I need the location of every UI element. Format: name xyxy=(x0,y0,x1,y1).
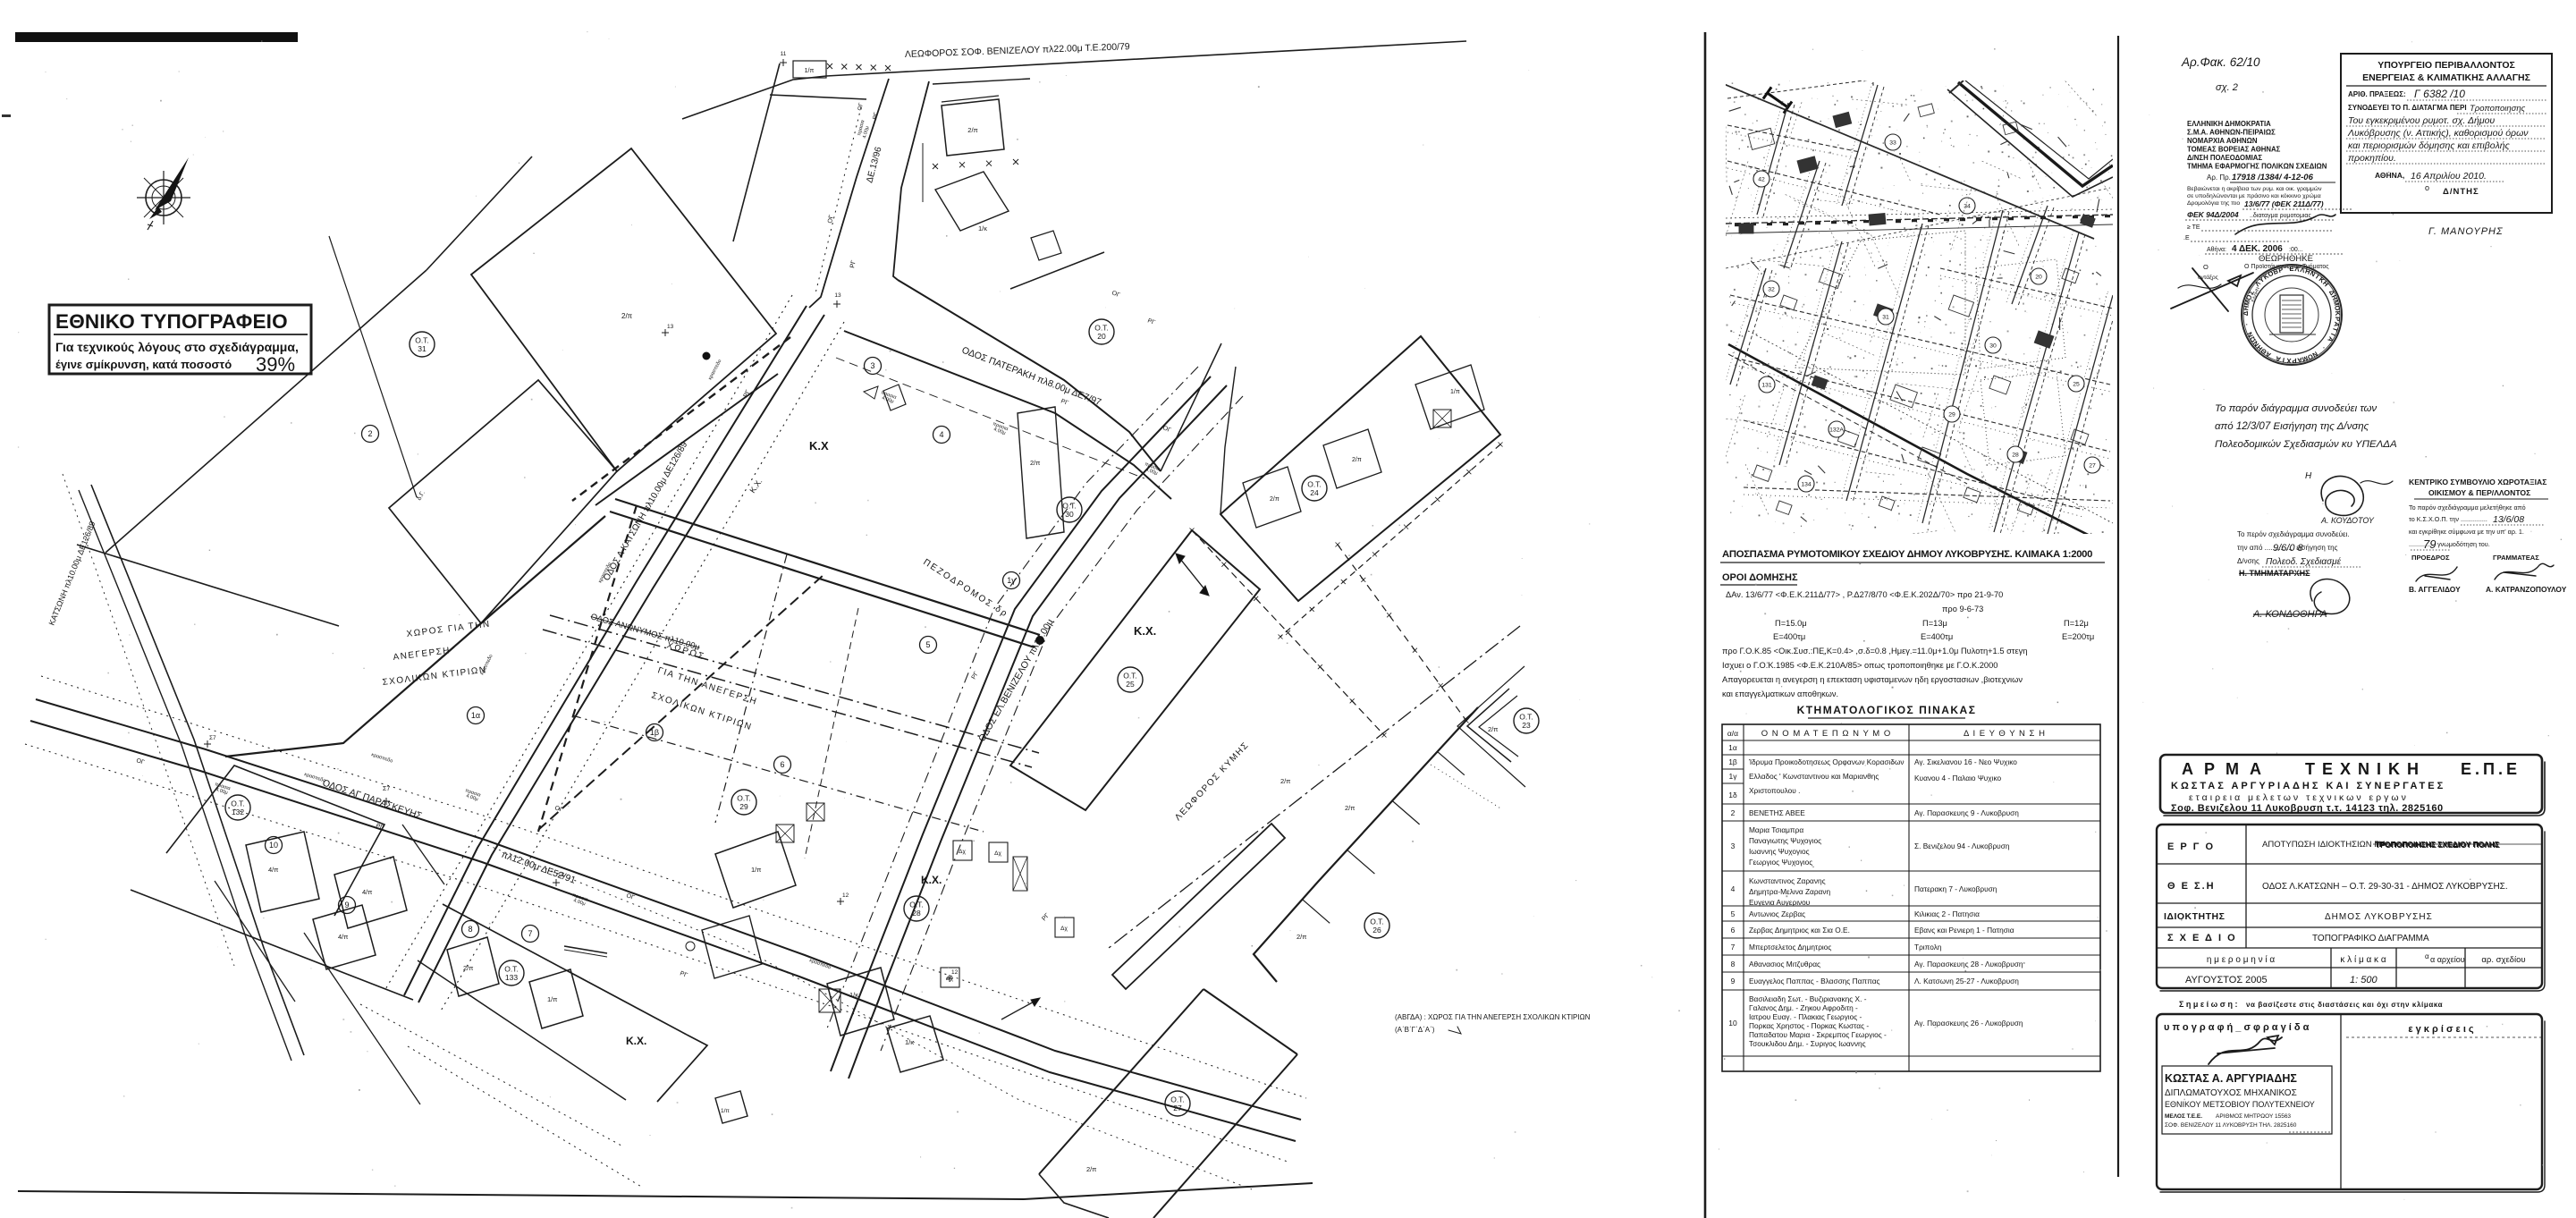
svg-text:20: 20 xyxy=(2035,275,2042,281)
svg-text:79: 79 xyxy=(2423,537,2436,551)
svg-text:Γ 6382 /10: Γ 6382 /10 xyxy=(2414,88,2465,100)
svg-text:ΚΩΣΤΑΣ ΑΡΓΥΡΙΑΔΗΣ ΚΑΙ: ΚΩΣΤΑΣ ΑΡΓΥΡΙΑΔΗΣ ΚΑΙ ΣΥΝΕΡΓΑΤΕΣ xyxy=(2171,781,2445,791)
svg-text:και εγκρίθηκε σύμφωνα με την υ: και εγκρίθηκε σύμφωνα με την υπ' αρ. 1. xyxy=(2409,528,2524,536)
svg-text:Ιατρου Ευαγ. - Πλακιας Γεωργ: Ιατρου Ευαγ. - Πλακιας Γεωργιος - xyxy=(1749,1012,1862,1021)
svg-text:ΜΕΛΟΣ Τ.Ε.Ε.: ΜΕΛΟΣ Τ.Ε.Ε. xyxy=(2165,1113,2202,1120)
svg-text:132Α: 132Α xyxy=(1829,427,1844,434)
svg-text:13/6/08: 13/6/08 xyxy=(2493,514,2524,525)
svg-text:α αρχείου: α αρχείου xyxy=(2430,955,2465,964)
svg-text:3: 3 xyxy=(1731,842,1736,850)
svg-text:28: 28 xyxy=(2012,453,2019,459)
svg-text:σε υποδηλώνονται με πράσινο κα: σε υποδηλώνονται με πράσινο και κόκκινο … xyxy=(2187,192,2321,199)
svg-text:Ε=400τμ: Ε=400τμ xyxy=(1773,632,1805,641)
svg-text:4: 4 xyxy=(939,430,943,439)
svg-text:ΑΘΗΝΑ,: ΑΘΗΝΑ, xyxy=(2375,171,2404,180)
svg-text:1γ: 1γ xyxy=(1729,772,1738,781)
svg-text:Βεβαιώνεται η ακρίβεια των ρυμ: Βεβαιώνεται η ακρίβεια των ρυμ. και οικ.… xyxy=(2187,185,2322,192)
svg-text:ΑΡΙΘΜΟΣ ΜΗΤΡΩΟΥ 15563: ΑΡΙΘΜΟΣ ΜΗΤΡΩΟΥ 15563 xyxy=(2216,1113,2291,1120)
svg-text:ΥΠΟΥΡΓΕΙΟ ΠΕΡΙΒΑΛΛΟΝΤΟΣ: ΥΠΟΥΡΓΕΙΟ ΠΕΡΙΒΑΛΛΟΝΤΟΣ xyxy=(2378,60,2515,71)
svg-text:2/π: 2/π xyxy=(621,312,633,320)
svg-text:κ λ ί μ α κ α: κ λ ί μ α κ α xyxy=(2340,954,2386,965)
svg-text:Ο.Τ.: Ο.Τ. xyxy=(737,794,751,803)
svg-text:εταιρεια μελετων τεχ: εταιρεια μελετων τεχνικων εργων xyxy=(2189,792,2409,803)
svg-text:12: 12 xyxy=(558,872,565,878)
svg-text:ΚΩΣΤΑΣ Α. ΑΡΓΥΡΙΑΔΗΣ: ΚΩΣΤΑΣ Α. ΑΡΓΥΡΙΑΔΗΣ xyxy=(2165,1072,2297,1085)
svg-text:10: 10 xyxy=(1728,1019,1737,1028)
svg-text:1α: 1α xyxy=(1728,743,1737,752)
svg-text:Σ7: Σ7 xyxy=(209,735,216,741)
svg-text:Του εγκεκριμένου ρυμοτ. σχ. Δή: Του εγκεκριμένου ρυμοτ. σχ. Δήμου xyxy=(2348,115,2495,126)
svg-text:..διαταγμα ρυμοτομιας: ..διαταγμα ρυμοτομιας xyxy=(2250,213,2311,219)
svg-text:Γ. ΜΑΝΟΥΡΗΣ: Γ. ΜΑΝΟΥΡΗΣ xyxy=(2428,226,2504,237)
svg-text:17918 /1384/ 4-12-06: 17918 /1384/ 4-12-06 xyxy=(2232,173,2314,182)
svg-text:Το παρόν διάγραμμα συνοδεύε: Το παρόν διάγραμμα συνοδεύει των xyxy=(2215,403,2377,414)
svg-text:2/π: 2/π xyxy=(1488,725,1498,733)
svg-text:≥ ΤΕ: ≥ ΤΕ xyxy=(2187,224,2200,231)
svg-text:2/π: 2/π xyxy=(1030,459,1040,467)
svg-text:ε γ κ ρ ί σ ε ι ς: ε γ κ ρ ί σ ε ι ς xyxy=(2408,1024,2474,1035)
svg-text:4 ΔΕΚ. 2006: 4 ΔΕΚ. 2006 xyxy=(2232,244,2283,254)
svg-text:Ο.Τ.: Ο.Τ. xyxy=(1123,672,1137,681)
svg-text:Κωνσταντινος Ζαρανης: Κωνσταντινος Ζαρανης xyxy=(1749,876,1826,885)
svg-text:ΤΟΜΕΑΣ ΒΟΡΕΙΑΣ ΑΘΗΝΑΣ: ΤΟΜΕΑΣ ΒΟΡΕΙΑΣ ΑΘΗΝΑΣ xyxy=(2187,146,2281,154)
svg-text:4/π: 4/π xyxy=(362,888,372,896)
svg-text:1β: 1β xyxy=(650,728,659,737)
svg-text:Ε.Π.Ε: Ε.Π.Ε xyxy=(2461,760,2521,778)
svg-text:2/π: 2/π xyxy=(1280,777,1290,785)
svg-text:υ π ο γ ρ α φ ή _ σ φ ρ α: υ π ο γ ρ α φ ή _ σ φ ρ α γ ί δ α xyxy=(2164,1022,2310,1033)
svg-text:Ο.Τ.: Ο.Τ. xyxy=(1062,502,1077,511)
svg-text:134: 134 xyxy=(1801,482,1812,488)
svg-text:ΦΕΚ 94Δ/2004: ΦΕΚ 94Δ/2004 xyxy=(2187,210,2239,219)
svg-text:Ζερβας Δημητριος και Σια Ο.Ε.: Ζερβας Δημητριος και Σια Ο.Ε. xyxy=(1749,926,1850,935)
svg-text:Δ/νσης: Δ/νσης xyxy=(2237,557,2259,565)
svg-text:2: 2 xyxy=(367,429,372,438)
svg-text:Εβανς και Ρενιερη 1 - Πατησι: Εβανς και Ρενιερη 1 - Πατησια xyxy=(1914,926,2014,935)
svg-text:132: 132 xyxy=(232,808,244,816)
svg-text:προ Γ.Ο.Κ.85 <Οικ.Συσ.:ΠΕ,Κ=0.: προ Γ.Ο.Κ.85 <Οικ.Συσ.:ΠΕ,Κ=0.4> ,σ.δ=0.… xyxy=(1722,647,2027,656)
svg-text:ΚΤΗΜΑΤΟΛΟΓΙΚΟΣ ΠΙΝΑΚΑΣ: ΚΤΗΜΑΤΟΛΟΓΙΚΟΣ ΠΙΝΑΚΑΣ xyxy=(1797,704,1977,716)
svg-text:Τροποποιησης: Τροποποιησης xyxy=(2470,104,2526,114)
svg-text:11: 11 xyxy=(781,51,787,57)
svg-text:ΤΟΠΟΓΡΑΦΙΚΟ ΔιΑΓΡΑΜΜΑ: ΤΟΠΟΓΡΑΦΙΚΟ ΔιΑΓΡΑΜΜΑ xyxy=(2312,934,2429,943)
svg-text:Τριπολη: Τριπολη xyxy=(1914,943,1942,952)
svg-text:2: 2 xyxy=(1731,808,1736,817)
svg-text:1α: 1α xyxy=(471,711,480,720)
svg-text:έγινε σμίκρυνση, κατά ποσοστό: έγινε σμίκρυνση, κατά ποσοστό xyxy=(55,358,232,371)
svg-text:Η. ΤΜΗΜΑΤΑΡΧΗΣ: Η. ΤΜΗΜΑΤΑΡΧΗΣ xyxy=(2239,569,2310,578)
svg-text:4: 4 xyxy=(1731,884,1736,893)
svg-text:ΔΙΠΛΩΜΑΤΟΥΧΟΣ ΜΗΧΑΝΙΚΟΣ: ΔΙΠΛΩΜΑΤΟΥΧΟΣ ΜΗΧΑΝΙΚΟΣ xyxy=(2165,1088,2297,1098)
svg-text:ΑΠΟΣΠΑΣΜΑ ΡΥΜΟΤΟΜΙΚΟΥ ΣΧΕΔΙΟ: ΑΠΟΣΠΑΣΜΑ ΡΥΜΟΤΟΜΙΚΟΥ ΣΧΕΔΙΟΥ ΔΗΜΟΥ ΛΥΚΟ… xyxy=(1722,549,2092,560)
svg-text:Σ7: Σ7 xyxy=(383,786,390,792)
svg-text:1/π: 1/π xyxy=(547,995,557,1003)
svg-text:4/π: 4/π xyxy=(338,933,348,941)
svg-text:Ίδρυμα Προικοδοτησεως Ορφανων: Ίδρυμα Προικοδοτησεως Ορφανων Κορασιδων xyxy=(1748,757,1905,766)
svg-text:και περιορισμών δόμησης και επ: και περιορισμών δόμησης και επιβολής xyxy=(2348,140,2511,151)
svg-text:ΘΕΩΡΗΘΗΚΕ: ΘΕΩΡΗΘΗΚΕ xyxy=(2259,254,2313,264)
svg-text:Ισχυει ο Γ.Ο.Κ.1985 <Φ.Ε.Κ.210: Ισχυει ο Γ.Ο.Κ.1985 <Φ.Ε.Κ.210Α/85> οπως… xyxy=(1722,661,1997,670)
svg-text:3: 3 xyxy=(870,361,874,370)
svg-text:32: 32 xyxy=(1768,287,1775,293)
svg-text:1/κ: 1/κ xyxy=(978,224,987,233)
svg-text:13: 13 xyxy=(667,324,674,330)
svg-text:Ε Ρ Γ Ο: Ε Ρ Γ Ο xyxy=(2167,842,2215,852)
svg-text:1/π: 1/π xyxy=(751,866,761,874)
svg-text:Ο.Τ.: Ο.Τ. xyxy=(1519,713,1533,722)
svg-text:Κ.Χ.: Κ.Χ. xyxy=(1134,624,1156,638)
svg-text:ΚΕΝΤΡΙΚΟ ΣΥΜΒΟΥΛΙΟ ΧΩΡΟΤΑΞΙΑ: ΚΕΝΤΡΙΚΟ ΣΥΜΒΟΥΛΙΟ ΧΩΡΟΤΑΞΙΑΣ xyxy=(2409,478,2546,486)
svg-text:Σ η μ ε ί ω σ η :: Σ η μ ε ί ω σ η : xyxy=(2179,1000,2237,1009)
svg-text:Σ Χ Ε Δ Ι Ο: Σ Χ Ε Δ Ι Ο xyxy=(2167,933,2237,943)
svg-text:30: 30 xyxy=(1989,343,1997,350)
svg-text:(ΑΒΓΔΑ) : ΧΩΡΟΣ ΓΙΑ ΤΗΝ ΑΝΕΓ: (ΑΒΓΔΑ) : ΧΩΡΟΣ ΓΙΑ ΤΗΝ ΑΝΕΓΕΡΣΗ ΣΧΟΛΙΚΩ… xyxy=(1395,1013,1591,1021)
svg-text:ΟΔΟΣ Λ.ΚΑΤΣΩΝΗ – Ο.Τ. 29-3: ΟΔΟΣ Λ.ΚΑΤΣΩΝΗ – Ο.Τ. 29-30-31 - ΔΗΜΟΣ Λ… xyxy=(2262,882,2508,892)
svg-text:6: 6 xyxy=(1731,926,1736,935)
svg-text:ΑΡΜΑ: ΑΡΜΑ xyxy=(2182,760,2272,778)
svg-text:Π=12μ: Π=12μ xyxy=(2064,619,2089,628)
svg-text:Π=13μ: Π=13μ xyxy=(1922,619,1947,628)
svg-text:5: 5 xyxy=(1731,909,1736,918)
svg-text:30: 30 xyxy=(1065,510,1074,519)
svg-text:ΕΝΕΡΓΕΙΑΣ & ΚΛΙΜΑΤΙΚΗΣ ΑΛΛ: ΕΝΕΡΓΕΙΑΣ & ΚΛΙΜΑΤΙΚΗΣ ΑΛΛΑΓΗΣ xyxy=(2362,72,2530,83)
svg-text:23: 23 xyxy=(1522,721,1531,730)
svg-text:Ο.Τ.: Ο.Τ. xyxy=(231,799,245,808)
svg-text:Δχ: Δχ xyxy=(1060,926,1068,932)
svg-text:9: 9 xyxy=(1731,977,1736,985)
svg-text:131: 131 xyxy=(1761,383,1772,389)
svg-text:9: 9 xyxy=(344,901,349,909)
svg-text:Μαρια Τσιαμπρα: Μαρια Τσιαμπρα xyxy=(1749,825,1803,834)
svg-text:ΕΛΛΗΝΙΚΗ ΔΗΜΟΚΡΑΤΙΑ: ΕΛΛΗΝΙΚΗ ΔΗΜΟΚΡΑΤΙΑ xyxy=(2187,120,2271,128)
svg-text:Ε=400τμ: Ε=400τμ xyxy=(1921,632,1953,641)
svg-text:Μπερτσελετος Δημητριος: Μπερτσελετος Δημητριος xyxy=(1749,943,1831,952)
svg-text:8: 8 xyxy=(1731,960,1736,968)
svg-text:Πολεοδομικών Σχεδιασμών κυ: Πολεοδομικών Σχεδιασμών κυ ΥΠΕΛΔΑ xyxy=(2215,439,2397,450)
svg-text:από 12/3/07 Εισήγηση της Δ: από 12/3/07 Εισήγηση της Δ/νσης xyxy=(2215,421,2369,432)
svg-text:Κ.Χ.: Κ.Χ. xyxy=(626,1035,646,1047)
svg-text:Ε: Ε xyxy=(2289,265,2293,273)
svg-text:8: 8 xyxy=(468,925,472,934)
svg-text:16 Απριλίου 2010.: 16 Απριλίου 2010. xyxy=(2411,171,2487,182)
svg-text:29: 29 xyxy=(739,802,748,811)
svg-text:Χ: Χ xyxy=(2286,357,2291,365)
svg-text:Αγ. Παρασκευης 26 - Λυκοβρυσ: Αγ. Παρασκευης 26 - Λυκοβρυση xyxy=(1914,1019,2023,1028)
svg-text:25: 25 xyxy=(2073,382,2080,388)
svg-text:31: 31 xyxy=(1882,315,1889,321)
svg-text:αρ. σχεδίου: αρ. σχεδίου xyxy=(2481,955,2525,965)
svg-text:Αρ.Φακ. 62/10: Αρ.Φακ. 62/10 xyxy=(2181,55,2260,69)
svg-text:1/π: 1/π xyxy=(1450,389,1460,395)
svg-text::00...: :00... xyxy=(2289,247,2303,253)
svg-text:1δ: 1δ xyxy=(1728,791,1737,799)
svg-text:1/κ: 1/κ xyxy=(849,991,858,999)
svg-text:Αθανασιος Μιτζυθρας: Αθανασιος Μιτζυθρας xyxy=(1749,960,1820,968)
svg-text:Για τεχνικούς λόγους στο σχεδι: Για τεχνικούς λόγους στο σχεδιάγραμμα, xyxy=(55,340,299,354)
svg-text:1: 500: 1: 500 xyxy=(2350,975,2378,985)
svg-text:ΑΥΓΟΥΣΤΟΣ 2005: ΑΥΓΟΥΣΤΟΣ 2005 xyxy=(2185,975,2268,985)
svg-text:η μ ε ρ ο μ η ν ί α: η μ ε ρ ο μ η ν ί α xyxy=(2207,954,2276,965)
svg-text:27: 27 xyxy=(1173,1104,1182,1112)
svg-text:Δημητρα-Μελινα Ζαρανη: Δημητρα-Μελινα Ζαρανη xyxy=(1749,887,1830,896)
svg-text:34: 34 xyxy=(1964,204,1971,210)
svg-text:Δ/ΝΤΗΣ: Δ/ΝΤΗΣ xyxy=(2443,187,2479,197)
svg-text:7: 7 xyxy=(1731,943,1736,952)
svg-text:ΤΡΟΠΟΠΟΙΗΣΗΣ ΣΧΕΔΙΟΥ ΠΟΛΗΣ: ΤΡΟΠΟΠΟΙΗΣΗΣ ΣΧΕΔΙΟΥ ΠΟΛΗΣ xyxy=(2376,841,2500,850)
svg-text:προκηπίου.: προκηπίου. xyxy=(2348,153,2396,164)
svg-text:Ο.Τ.: Ο.Τ. xyxy=(909,901,924,909)
svg-text:να βασίζεστε στις διαστάσει: να βασίζεστε στις διαστάσεις και όχι στη… xyxy=(2246,1001,2443,1009)
svg-text:προ 9-6-73: προ 9-6-73 xyxy=(1942,605,1983,613)
svg-text:ΝΟΜΑΡΧΙΑ ΑΘΗΝΩΝ: ΝΟΜΑΡΧΙΑ ΑΘΗΝΩΝ xyxy=(2187,137,2258,145)
svg-text:2/π: 2/π xyxy=(1345,804,1355,812)
svg-text:Ο.Τ.: Ο.Τ. xyxy=(1094,324,1109,333)
svg-text:Κ.Χ.: Κ.Χ. xyxy=(921,874,942,886)
svg-text:Π=15.0μ: Π=15.0μ xyxy=(1775,619,1807,628)
svg-text:4/π: 4/π xyxy=(268,866,278,874)
svg-text:2/π: 2/π xyxy=(1296,933,1306,941)
svg-text:Ο Ν Ο Μ Α Τ Ε Π Ω Ν Υ Μ Ο: Ο Ν Ο Μ Α Τ Ε Π Ω Ν Υ Μ Ο xyxy=(1761,729,1891,739)
svg-text:2/π: 2/π xyxy=(1086,1165,1096,1173)
svg-text:ΠΡΟΕΔΡΟΣ: ΠΡΟΕΔΡΟΣ xyxy=(2411,554,2450,562)
svg-text:ΤΕΧΝΙΚΗ: ΤΕΧΝΙΚΗ xyxy=(2305,760,2426,778)
svg-text:Χριστοπουλου .: Χριστοπουλου . xyxy=(1749,786,1800,795)
svg-text:Αγ. Σικελιανου 16 - Νεο Ψυχι: Αγ. Σικελιανου 16 - Νεο Ψυχικο xyxy=(1914,757,2017,766)
svg-text:2/π: 2/π xyxy=(967,126,977,134)
svg-text:Πολεοδ. Σχεδιασμέ: Πολεοδ. Σχεδιασμέ xyxy=(2266,556,2342,567)
svg-text:Το περόν σχεδιάγραμμα συνοδεύε: Το περόν σχεδιάγραμμα συνοδεύει. xyxy=(2237,530,2350,538)
svg-text:Αντωνιος Ζερβας: Αντωνιος Ζερβας xyxy=(1749,909,1805,918)
svg-text:και επαγγελματικων αποθηκων.: και επαγγελματικων αποθηκων. xyxy=(1722,689,1838,698)
svg-text:7: 7 xyxy=(528,929,532,938)
svg-text:33: 33 xyxy=(1889,140,1896,147)
svg-text:12: 12 xyxy=(951,969,959,976)
svg-text:5: 5 xyxy=(925,640,930,649)
svg-text:Η: Η xyxy=(2305,471,2312,481)
svg-text:2/π: 2/π xyxy=(1270,496,1280,503)
svg-text:13/6/77 (ΦΕΚ 211Δ/77): 13/6/77 (ΦΕΚ 211Δ/77) xyxy=(2244,199,2324,208)
svg-text:1/π: 1/π xyxy=(805,68,815,74)
svg-text:ΟΙΚΙΣΜΟΥ & ΠΕΡ/ΛΛΟΝΤΟΣ: ΟΙΚΙΣΜΟΥ & ΠΕΡ/ΛΛΟΝΤΟΣ xyxy=(2428,488,2530,497)
svg-text:ΒΕΝΕΤΗΣ ΑΒΕΕ: ΒΕΝΕΤΗΣ ΑΒΕΕ xyxy=(1749,808,1805,817)
svg-text:Ο.Τ.: Ο.Τ. xyxy=(415,336,429,345)
svg-text:1/π: 1/π xyxy=(721,1108,730,1114)
svg-text:Δχ: Δχ xyxy=(959,849,966,855)
svg-text:39%: 39% xyxy=(256,353,295,376)
svg-text:Λ. Κατσωνη 25-27 - Λυκοβρυση: Λ. Κατσωνη 25-27 - Λυκοβρυση xyxy=(1914,977,2019,985)
svg-text:Θ Ε Σ.Η: Θ Ε Σ.Η xyxy=(2167,881,2216,892)
svg-text:Ε=200τμ: Ε=200τμ xyxy=(2062,632,2094,641)
svg-text:Αγ. Παρασκευης 9 - Λυκοβρυση: Αγ. Παρασκευης 9 - Λυκοβρυση xyxy=(1914,808,2019,817)
svg-text:31: 31 xyxy=(418,344,427,353)
svg-text:ΟΡΟΙ ΔΟΜΗΣΗΣ: ΟΡΟΙ ΔΟΜΗΣΗΣ xyxy=(1722,572,1798,583)
svg-text:133: 133 xyxy=(505,973,518,982)
svg-text:σχ. 2: σχ. 2 xyxy=(2216,82,2238,93)
svg-text:ΑΡΙΘ. ΠΡΑΞΕΩΣ:: ΑΡΙΘ. ΠΡΑΞΕΩΣ: xyxy=(2348,90,2406,98)
svg-text:Κ.Χ: Κ.Χ xyxy=(809,439,829,453)
svg-text:1γ: 1γ xyxy=(1007,576,1016,585)
svg-text:2/π: 2/π xyxy=(1352,457,1362,463)
svg-text:Απαγορευεται η ανεγερση η επεκ: Απαγορευεται η ανεγερση η επεκταση υφιστ… xyxy=(1722,675,2023,684)
svg-text:Πατερακη 7 - Λυκοβρυση: Πατερακη 7 - Λυκοβρυση xyxy=(1914,884,1997,893)
svg-text:42: 42 xyxy=(1758,177,1765,183)
svg-text:Αρ. Πρ.: Αρ. Πρ. xyxy=(2207,173,2231,182)
svg-text:13: 13 xyxy=(834,292,841,299)
svg-text:(Α΄Β΄Γ΄Δ΄Α΄): (Α΄Β΄Γ΄Δ΄Α΄) xyxy=(1395,1026,1435,1034)
svg-text:Α. ΚΑΤΡΑΝΖΟΠΟΥΛΟΥ: Α. ΚΑΤΡΑΝΖΟΠΟΥΛΟΥ xyxy=(2486,585,2567,594)
svg-text:Α. ΚΟΝΔΟΘΗΡΑ: Α. ΚΟΝΔΟΘΗΡΑ xyxy=(2252,609,2327,620)
svg-text:Ο.Τ.: Ο.Τ. xyxy=(1170,1095,1185,1104)
svg-text:26: 26 xyxy=(1372,926,1381,935)
svg-text:Αθήνα:: Αθήνα: xyxy=(2207,247,2226,253)
svg-text:Δ Ι Ε Υ Θ Υ Ν Σ Η: Δ Ι Ε Υ Θ Υ Ν Σ Η xyxy=(1964,729,2046,739)
svg-text:Παναγιωτης Ψυχογιος: Παναγιωτης Ψυχογιος xyxy=(1749,836,1821,845)
svg-text:ΕΘΝΙΚΟ ΤΥΠΟΓΡΑΦΕΙΟ: ΕΘΝΙΚΟ ΤΥΠΟΓΡΑΦΕΙΟ xyxy=(55,310,288,333)
svg-text:ΙΔΙΟΚΤΗΤΗΣ: ΙΔΙΟΚΤΗΤΗΣ xyxy=(2164,911,2225,922)
svg-text:Ιωαννης Ψυχογιος: Ιωαννης Ψυχογιος xyxy=(1749,847,1810,856)
svg-text:Β. ΑΓΓΕΛΙΔΟΥ: Β. ΑΓΓΕΛΙΔΟΥ xyxy=(2409,585,2461,594)
svg-text:ΓΡΑΜΜΑΤΕΑΣ: ΓΡΑΜΜΑΤΕΑΣ xyxy=(2493,554,2539,562)
svg-text:29: 29 xyxy=(1948,412,1955,419)
svg-text:Βασιλειαδη Σωτ. - Βυζιριανακ: Βασιλειαδη Σωτ. - Βυζιριανακης Χ. - xyxy=(1749,994,1867,1003)
svg-text:Σοφ. Βενιζελου 11 Λυκοβρυση: Σοφ. Βενιζελου 11 Λυκοβρυση τ.τ. 14123 τ… xyxy=(2171,803,2444,814)
svg-text:Γαλανος Δημ. - Ζηκου Αφροδιτ: Γαλανος Δημ. - Ζηκου Αφροδιτη - xyxy=(1749,1003,1858,1012)
svg-text:28: 28 xyxy=(912,909,921,918)
svg-text:Α. ΚΟΥΔΟΤΟΥ: Α. ΚΟΥΔΟΤΟΥ xyxy=(2320,516,2375,525)
svg-text:25: 25 xyxy=(1126,680,1135,689)
svg-text:Ρ: Ρ xyxy=(2292,357,2296,365)
svg-text:Σ.Μ.Α. ΑΘΗΝΩΝ-ΠΕΙΡΑΙΩΣ: Σ.Μ.Α. ΑΘΗΝΩΝ-ΠΕΙΡΑΙΩΣ xyxy=(2187,129,2276,137)
svg-text:ΔΑν. 13/6/77 <Φ.Ε.Κ.211Δ/77>: ΔΑν. 13/6/77 <Φ.Ε.Κ.211Δ/77> , Ρ.Δ27/8/7… xyxy=(1726,590,2003,599)
svg-text:Ο.Τ.: Ο.Τ. xyxy=(1307,480,1322,489)
svg-text:Δ/ΝΣΗ ΠΟΛΕΟΔΟΜΙΑΣ: Δ/ΝΣΗ ΠΟΛΕΟΔΟΜΙΑΣ xyxy=(2187,154,2262,162)
svg-text:Ο.Τ.: Ο.Τ. xyxy=(1370,918,1384,926)
svg-text:α/α: α/α xyxy=(1727,729,1738,738)
svg-text:12: 12 xyxy=(842,892,849,899)
svg-text:ΤΜΗΜΑ ΕΦΑΡΜΟΓΗΣ ΠΟΛΙΚΩΝ ΣΧΕΔΙΩ: ΤΜΗΜΑ ΕΦΑΡΜΟΓΗΣ ΠΟΛΙΚΩΝ ΣΧΕΔΙΩΝ xyxy=(2187,163,2327,171)
svg-text:1/κ: 1/κ xyxy=(905,1038,914,1046)
svg-text:Ευαγγελος Παππας - Βλασσης Π: Ευαγγελος Παππας - Βλασσης Παππας xyxy=(1749,977,1880,985)
svg-text:ΕΘΝΙΚΟΥ ΜΕΤΣΟΒΙΟΥ ΠΟΛΥΤΕΧΝ: ΕΘΝΙΚΟΥ ΜΕΤΣΟΒΙΟΥ ΠΟΛΥΤΕΧΝΕΙΟΥ xyxy=(2165,1100,2315,1109)
svg-text:ΑΠΟΤΥΠΩΣΗ ΙΔΙΟΚΤΗΣΙΩΝ ΓΙΑ: ΑΠΟΤΥΠΩΣΗ ΙΔΙΟΚΤΗΣΙΩΝ ΓΙΑ xyxy=(2262,840,2387,850)
svg-text:20: 20 xyxy=(1097,332,1106,341)
svg-text:10: 10 xyxy=(269,841,278,850)
svg-text:Παπαδατου Μαρια - Σκρεμπος Γ: Παπαδατου Μαρια - Σκρεμπος Γεωργιος - xyxy=(1749,1030,1887,1039)
svg-text:Γεωργιος Ψυχογιος: Γεωργιος Ψυχογιος xyxy=(1749,858,1812,867)
svg-text:ΔΗΜΟΣ ΛΥΚΟΒΡΥΣΗΣ: ΔΗΜΟΣ ΛΥΚΟΒΡΥΣΗΣ xyxy=(2325,912,2433,922)
svg-text:Δρομολόγια της πιο: Δρομολόγια της πιο xyxy=(2187,199,2240,207)
svg-text:6: 6 xyxy=(780,760,784,769)
svg-text:............... γνωμοδότηση: ............... γνωμοδότηση του. xyxy=(2409,540,2490,548)
svg-text:1β: 1β xyxy=(1728,757,1737,766)
svg-text:Δχ: Δχ xyxy=(994,850,1001,857)
svg-text:.Ε: .Ε xyxy=(2183,235,2190,241)
svg-text:9/6/0 8: 9/6/0 8 xyxy=(2273,543,2304,554)
svg-text:το Κ.Σ.Χ.Ο.Π. την ..........: το Κ.Σ.Χ.Ο.Π. την ............... xyxy=(2409,515,2487,523)
svg-text:Κιλικιας 2 - Πατησια: Κιλικιας 2 - Πατησια xyxy=(1914,909,1980,918)
svg-text:Λυκόβρυσης (ν. Αττικής), καθορ: Λυκόβρυσης (ν. Αττικής), καθορισμού όρων xyxy=(2347,128,2529,139)
svg-text:Ευγενια Αυγερινου: Ευγενια Αυγερινου xyxy=(1749,898,1811,907)
svg-text:ΣΥΝΟΔΕΥΕΙ ΤΟ Π. ΔΙΑΤΑΓΜΑ ΠΕΡΙ: ΣΥΝΟΔΕΥΕΙ ΤΟ Π. ΔΙΑΤΑΓΜΑ ΠΕΡΙ xyxy=(2348,104,2467,112)
svg-text:α: α xyxy=(2425,952,2429,960)
svg-text:Αγ. Παρασκευης 28 - Λυκοβρυσ: Αγ. Παρασκευης 28 - Λυκοβρυση xyxy=(1914,960,2023,968)
svg-text:Σ. Βενιζελου 94 - Λυκοβρυση: Σ. Βενιζελου 94 - Λυκοβρυση xyxy=(1914,842,2010,850)
svg-text:Ο.Τ.: Ο.Τ. xyxy=(504,965,519,974)
svg-text:Τσουκλιδου Δημ. - Συριγος Ιω: Τσουκλιδου Δημ. - Συριγος Ιωαννης xyxy=(1749,1039,1866,1048)
svg-text:Πορκας Χρηστος - Πορκας Κωστ: Πορκας Χρηστος - Πορκας Κωστας - xyxy=(1749,1021,1869,1030)
svg-text:27: 27 xyxy=(2089,463,2096,469)
svg-text:2/π: 2/π xyxy=(463,964,473,972)
svg-text:24: 24 xyxy=(1310,488,1319,497)
svg-text:Το παρόν σχεδιάγραμμα μελετήθη: Το παρόν σχεδιάγραμμα μελετήθηκε από xyxy=(2409,503,2526,512)
svg-text:Ελλαδος ' Κωνσταντινου και Μαρ: Ελλαδος ' Κωνσταντινου και Μαριανθης xyxy=(1749,772,1879,781)
svg-text:ΣΟΦ. ΒΕΝΙΖΕΛΟΥ 11 ΛΥΚΟΒΡΥΣΗ: ΣΟΦ. ΒΕΝΙΖΕΛΟΥ 11 ΛΥΚΟΒΡΥΣΗ ΤΗΛ. 2825160 xyxy=(2165,1122,2297,1129)
svg-text:Κυανου 4 - Παλαιο Ψυχικο: Κυανου 4 - Παλαιο Ψυχικο xyxy=(1914,774,2002,782)
svg-text:ο: ο xyxy=(2425,183,2429,192)
svg-text:Ο: Ο xyxy=(2203,263,2209,271)
